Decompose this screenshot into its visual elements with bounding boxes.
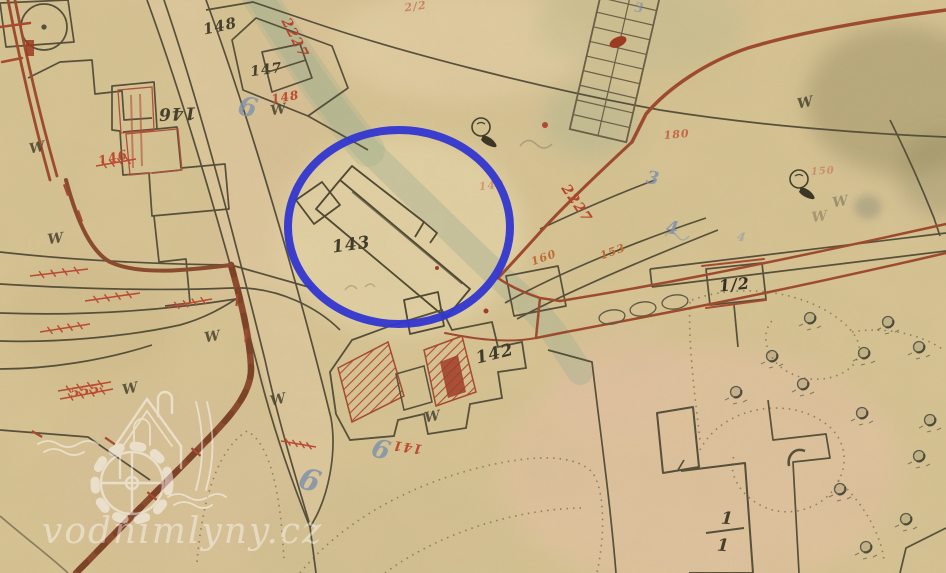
paper-grain xyxy=(0,0,946,573)
watermark-text: vodnimlyny.cz xyxy=(42,511,323,552)
cadastral-map: WWWWWWWWWW 1481471461431421/211222722271… xyxy=(0,0,946,573)
map-image[interactable]: WWWWWWWWWW 1481471461431421/211222722271… xyxy=(0,0,946,573)
